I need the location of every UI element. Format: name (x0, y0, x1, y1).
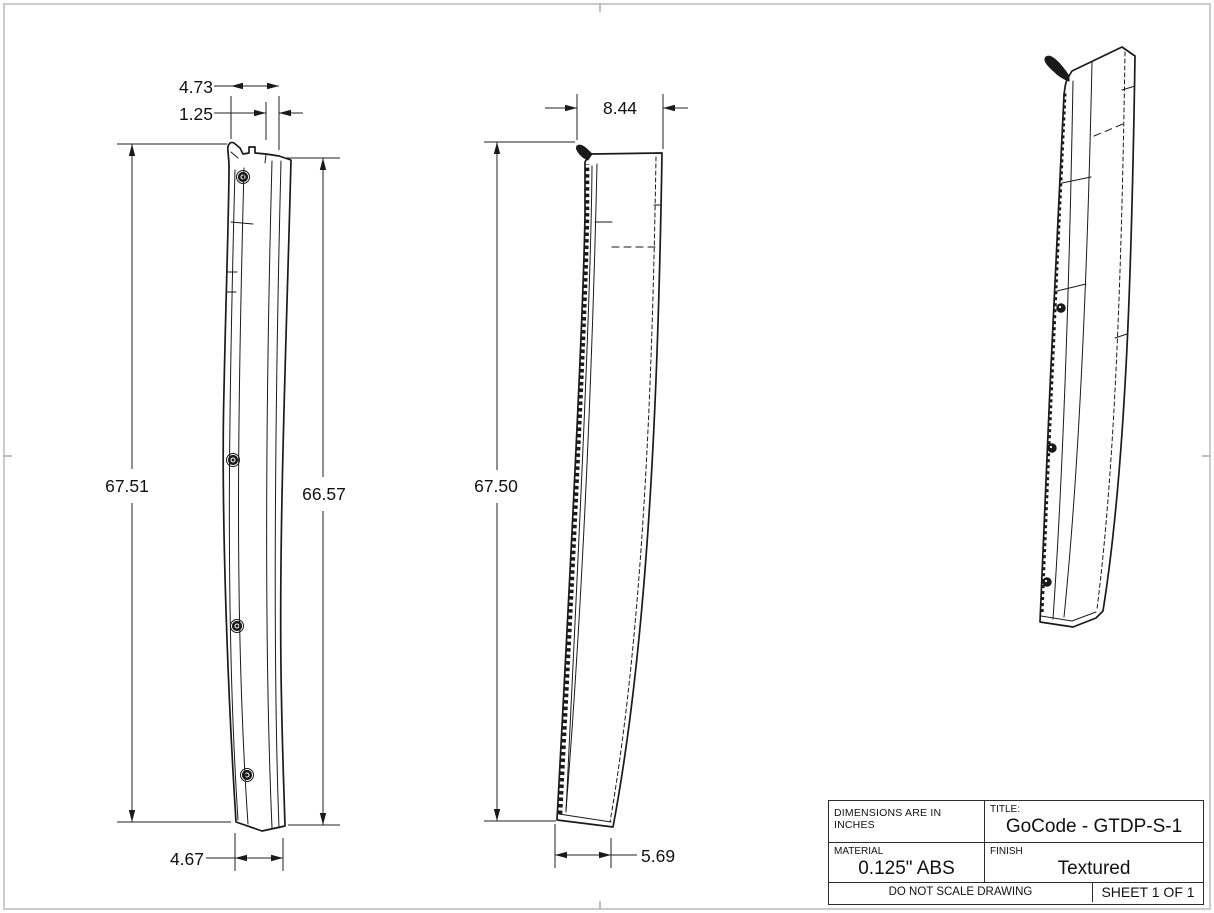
dim-text-front-height-overall: 67.51 (105, 476, 149, 496)
fastener-clip (227, 454, 240, 467)
finish-cell: FINISH Textured (985, 843, 1203, 882)
title-block-row-1: DIMENSIONS ARE IN INCHES TITLE: GoCode -… (829, 801, 1203, 843)
dim-text-front-top-flange: 1.25 (179, 104, 213, 124)
dim-front-height-right: 66.57 (285, 158, 346, 825)
title-block-row-2: MATERIAL 0.125" ABS FINISH Textured (829, 843, 1203, 883)
material-value: 0.125" ABS (829, 858, 984, 880)
dim-text-side-bottom-width: 5.69 (641, 846, 675, 866)
fastener-clip (1043, 578, 1051, 586)
title-label: TITLE: (985, 801, 1203, 815)
fastener-clip (237, 171, 250, 184)
drawing-canvas: 4.73 1.25 67.51 66.57 (0, 0, 1214, 913)
iso-clip-edge (1042, 92, 1065, 612)
dim-text-front-top-width: 4.73 (179, 77, 213, 97)
iso-inner-lines (1041, 52, 1135, 621)
title-block-row-3: DO NOT SCALE DRAWING SHEET 1 OF 1 (829, 883, 1203, 902)
fastener-clip (1048, 444, 1056, 452)
side-view: 8.44 67.50 5.69 (474, 94, 688, 868)
dim-text-side-top-width: 8.44 (603, 98, 637, 118)
dim-side-bottom-width: 5.69 (555, 824, 675, 868)
scale-note: DO NOT SCALE DRAWING (829, 883, 1093, 902)
dim-text-side-height-overall: 67.50 (474, 476, 518, 496)
dim-text-front-bottom-width: 4.67 (170, 849, 204, 869)
dim-side-top-width: 8.44 (545, 94, 688, 149)
dim-side-height-overall: 67.50 (474, 142, 575, 821)
title-value: GoCode - GTDP-S-1 (985, 816, 1203, 838)
title-cell: TITLE: GoCode - GTDP-S-1 (985, 801, 1203, 842)
fastener-clip (231, 620, 244, 633)
finish-value: Textured (985, 858, 1203, 880)
dimensions-note-cell: DIMENSIONS ARE IN INCHES (829, 801, 985, 842)
material-cell: MATERIAL 0.125" ABS (829, 843, 985, 882)
front-view: 4.73 1.25 67.51 66.57 (105, 77, 346, 871)
iso-hook (1045, 56, 1069, 81)
isometric-view (1040, 47, 1135, 627)
dim-front-height-overall: 67.51 (105, 144, 231, 822)
finish-label: FINISH (985, 843, 1203, 857)
side-view-hook (576, 145, 592, 160)
frame-tick-marks (3, 3, 1211, 910)
dim-front-bottom-width: 4.67 (170, 833, 283, 871)
front-view-contour-lines (226, 152, 281, 828)
title-block: DIMENSIONS ARE IN INCHES TITLE: GoCode -… (828, 800, 1204, 905)
front-view-fastener-clips (227, 171, 254, 782)
dim-text-front-height-right: 66.57 (302, 484, 346, 504)
fastener-clip (241, 769, 254, 782)
fastener-clip (1057, 304, 1065, 312)
material-label: MATERIAL (829, 843, 984, 857)
dimensions-note: DIMENSIONS ARE IN INCHES (829, 801, 984, 831)
iso-outline (1040, 47, 1135, 627)
drawing-sheet: 4.73 1.25 67.51 66.57 (0, 0, 1214, 913)
sheet-note: SHEET 1 OF 1 (1093, 883, 1203, 902)
dim-front-top-flange: 1.25 (179, 102, 303, 140)
